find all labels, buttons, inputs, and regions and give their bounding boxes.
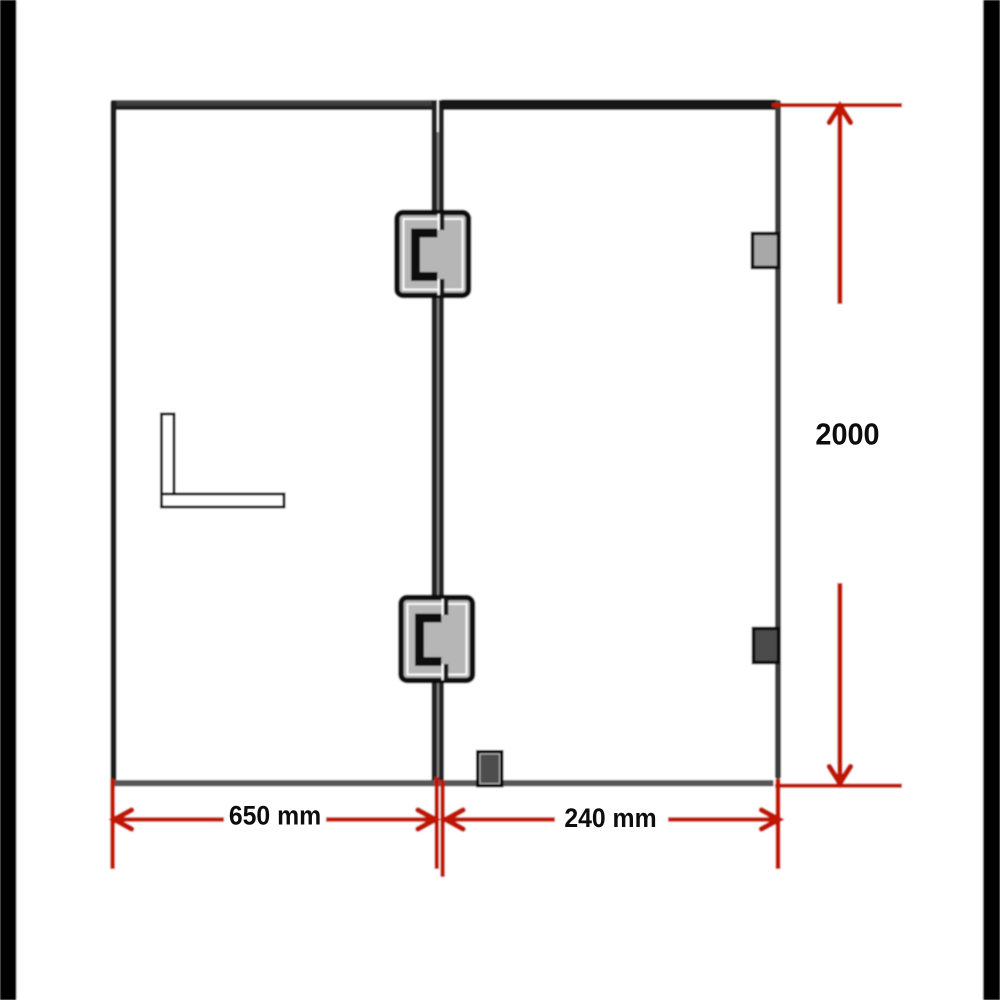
- svg-text:240 mm: 240 mm: [564, 804, 656, 833]
- svg-text:2000: 2000: [815, 418, 879, 452]
- svg-text:650 mm: 650 mm: [229, 802, 321, 831]
